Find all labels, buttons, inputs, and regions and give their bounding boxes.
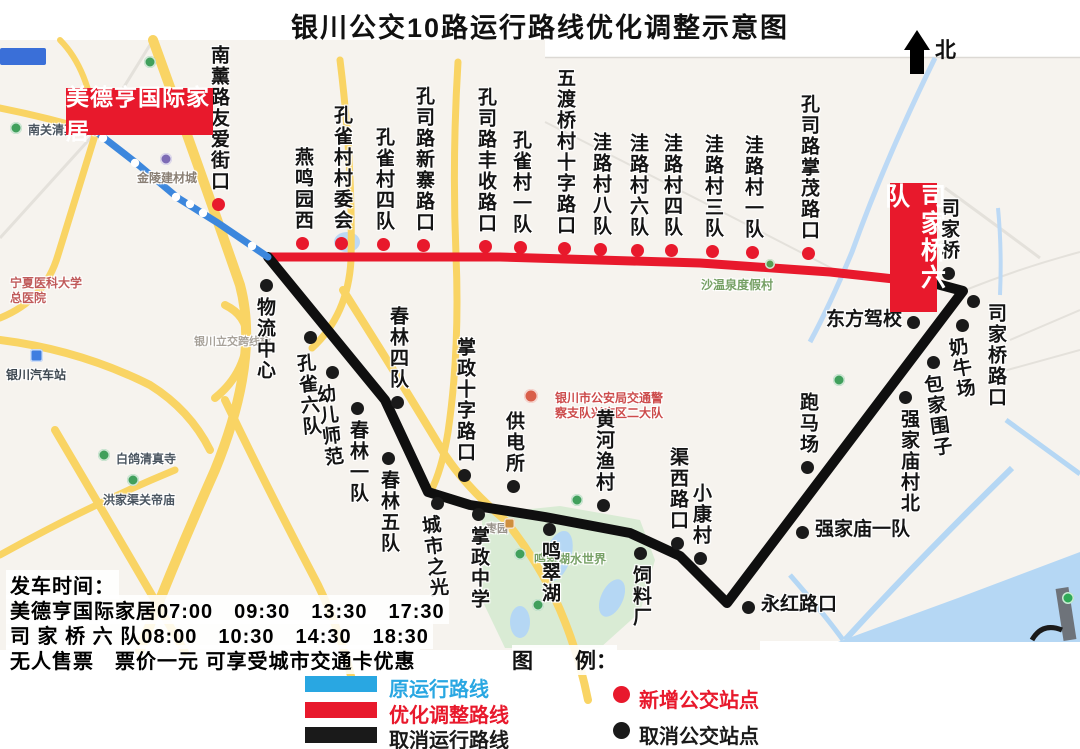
stop-label: 洼路村三队 — [702, 134, 722, 239]
stop-label: 供电所 — [503, 411, 523, 474]
cancelled-stop-dot — [967, 295, 980, 308]
stop-label: 跑马场 — [797, 392, 817, 455]
legend-optimized-route-swatch — [305, 702, 377, 718]
new-stop-dot — [377, 238, 390, 251]
stop-label: 燕鸣园西 — [292, 147, 312, 231]
bus-route-diagram: 银川公交10路运行路线优化调整示意图 南关清真大寺金陵建材城宁夏医科大学总医院银… — [0, 0, 1080, 749]
cancelled-stop-dot — [796, 526, 809, 539]
cancelled-stop-dot — [382, 452, 395, 465]
stop-label: 饲料厂 — [630, 565, 650, 628]
stop-label: 鸣翠湖 — [539, 541, 559, 604]
new-stop-dot — [558, 242, 571, 255]
cancelled-stop-dot — [351, 402, 364, 415]
new-stop-dot — [665, 244, 678, 257]
cancelled-stop-dot — [597, 499, 610, 512]
stop-label: 春林一队 — [347, 420, 367, 504]
north-arrow-stem — [910, 48, 924, 74]
cancelled-stop-dot — [927, 356, 940, 369]
legend-cancelled-stop-dot — [613, 722, 630, 739]
stop-label: 孔司路丰收路口 — [475, 87, 495, 234]
legend-original-route-label: 原运行路线 — [389, 673, 489, 702]
fare-notice: 无人售票 票价一元 可享受城市交通卡优惠 — [6, 645, 420, 674]
legend-cancelled-stop-label: 取消公交站点 — [639, 720, 759, 749]
stop-label: 掌政中学 — [468, 526, 488, 610]
stop-label: 孔司路新寨路口 — [413, 86, 433, 233]
new-stop-dot — [746, 246, 759, 259]
legend-cancelled-route-swatch — [305, 727, 377, 743]
cancelled-stop-dot — [694, 552, 707, 565]
new-stop-dot — [212, 198, 225, 211]
terminal-end-box: 司家桥六队 — [890, 183, 937, 312]
stop-label: 洼路村一队 — [742, 135, 762, 240]
cancelled-stop-dot — [907, 316, 920, 329]
cancelled-stop-dot — [543, 523, 556, 536]
legend-original-route-swatch — [305, 676, 377, 692]
legend-new-stop-label: 新增公交站点 — [639, 684, 759, 713]
legend-new-stop-dot — [613, 686, 630, 703]
new-stop-dot — [335, 237, 348, 250]
north-indicator: 北 — [903, 30, 973, 80]
stop-label: 孔雀村四队 — [373, 127, 393, 232]
stop-label: 孔雀村一队 — [510, 130, 530, 235]
stop-label: 幼儿师范 — [313, 383, 343, 469]
terminal-start-box: 美德亨国际家居 — [66, 88, 213, 135]
legend-cancelled-route-label: 取消运行路线 — [389, 724, 509, 749]
stop-label: 奶牛场 — [945, 336, 976, 402]
new-stop-dot — [514, 241, 527, 254]
new-stop-dot — [417, 239, 430, 252]
cancelled-stop-dot — [956, 319, 969, 332]
north-arrow-icon — [904, 30, 930, 50]
new-stop-dot — [631, 244, 644, 257]
stop-label: 永红路口 — [761, 595, 837, 615]
cancelled-stop-dot — [304, 331, 317, 344]
stop-label: 城市之光 — [418, 514, 448, 600]
stop-label: 物流中心 — [254, 297, 274, 381]
cancelled-stop-dot — [634, 547, 647, 560]
stop-label: 五渡桥村十字路口 — [554, 68, 574, 236]
cancelled-stop-dot — [472, 508, 485, 521]
stop-label: 洼路村六队 — [627, 133, 647, 238]
legend-title: 图 例： — [512, 645, 617, 675]
new-stop-dot — [594, 243, 607, 256]
stop-label: 孔雀村村委会 — [331, 105, 351, 231]
cancelled-stop-dot — [742, 601, 755, 614]
cancelled-stop-dot — [431, 497, 444, 510]
stop-label: 春林四队 — [387, 306, 407, 390]
stop-label: 黄河渔村 — [593, 409, 613, 493]
cancelled-stop-dot — [671, 537, 684, 550]
stop-label: 东方驾校 — [826, 310, 902, 330]
cancelled-stop-dot — [899, 391, 912, 404]
new-stop-dot — [479, 240, 492, 253]
cancelled-stop-dot — [326, 366, 339, 379]
stop-label: 强家庙一队 — [815, 520, 910, 540]
stop-label: 孔司路掌茂路口 — [798, 94, 818, 241]
cancelled-stop-dot — [391, 396, 404, 409]
stop-label: 渠西路口 — [667, 447, 687, 531]
stop-label: 春林五队 — [378, 470, 398, 554]
cancelled-stop-dot — [458, 469, 471, 482]
stop-label: 司家桥路口 — [985, 303, 1005, 408]
stop-label: 包家围子 — [920, 373, 951, 459]
new-stop-dot — [706, 245, 719, 258]
new-stop-dot — [802, 247, 815, 260]
stop-label: 小康村 — [690, 483, 710, 546]
stop-label: 洼路村八队 — [590, 132, 610, 237]
stop-label: 掌政十字路口 — [454, 337, 474, 463]
stop-label: 强家庙村北 — [898, 409, 918, 514]
cancelled-stop-dot — [507, 480, 520, 493]
cancelled-stop-dot — [801, 461, 814, 474]
new-stop-dot — [296, 237, 309, 250]
cancelled-stop-dot — [260, 279, 273, 292]
north-label: 北 — [935, 34, 956, 64]
stop-label: 洼路村四队 — [661, 133, 681, 238]
